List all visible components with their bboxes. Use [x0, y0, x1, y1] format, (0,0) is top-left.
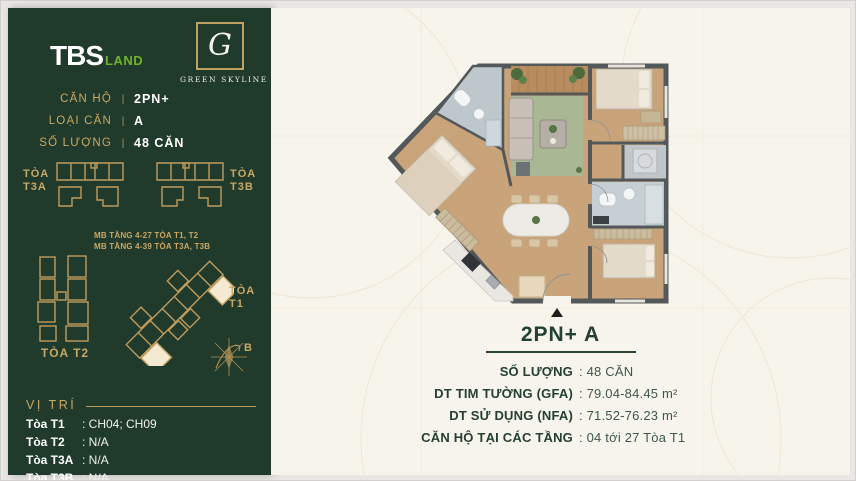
unit-specs: CĂN HỘ | 2PN+ LOẠI CĂN | A SỐ LƯỢNG | 48…	[8, 88, 271, 154]
location-row: Tòa T2 : N/A	[26, 433, 157, 451]
spec-divider: |	[112, 116, 134, 127]
compass-north-label: B	[244, 342, 252, 354]
project-name: GREEN SKYLINE	[180, 75, 260, 84]
floorplan-panel: 2PN+ A SỐ LƯỢNG : 48 CĂN DT TIM TƯỜNG (G…	[271, 8, 850, 475]
green-skyline-logo: G GREEN SKYLINE	[180, 22, 260, 84]
spec-value: 2PN+	[134, 92, 271, 106]
logo-row: TBSLAND G GREEN SKYLINE	[8, 22, 271, 92]
sidebar: TBSLAND G GREEN SKYLINE CĂN HỘ | 2PN+ LO…	[8, 8, 271, 475]
spec-value: 48 CĂN	[134, 136, 271, 150]
tower-t1-label: TÒA T1	[229, 285, 255, 311]
spec-value: A	[134, 114, 271, 128]
spec-label: LOẠI CĂN	[8, 115, 112, 127]
unit-title: 2PN+ A	[271, 323, 850, 347]
tbs-land-logo: TBSLAND	[50, 40, 143, 72]
floorplan-drawing	[383, 58, 685, 320]
tower-t3b-diagram-icon	[151, 159, 227, 213]
detail-row: CĂN HỘ TẠI CÁC TẦNG : 04 tới 27 Tòa T1	[271, 426, 850, 448]
detail-row: DT SỬ DỤNG (NFA) : 71.52-76.23 m²	[271, 404, 850, 426]
spec-divider: |	[112, 138, 134, 149]
spec-row-can-ho: CĂN HỘ | 2PN+	[8, 88, 271, 110]
compass-icon	[206, 334, 252, 380]
ottoman	[516, 162, 530, 176]
location-row: Tòa T3A : N/A	[26, 451, 157, 469]
location-heading: VỊ TRÍ	[26, 398, 76, 412]
monogram-g-icon: G	[208, 31, 232, 61]
tower-t2-diagram-icon	[22, 254, 108, 346]
plant-icon	[576, 167, 582, 173]
note-line: MB TẦNG 4-39 TÒA T3A, T3B	[94, 241, 210, 252]
detail-row: SỐ LƯỢNG : 48 CĂN	[271, 360, 850, 382]
balcony	[511, 66, 588, 94]
living-room	[509, 96, 583, 176]
tower-t3a-diagram-icon	[53, 159, 129, 213]
unit-details: SỐ LƯỢNG : 48 CĂN DT TIM TƯỜNG (GFA) : 7…	[271, 360, 850, 448]
bathroom-2	[590, 182, 666, 227]
brochure-page: TBSLAND G GREEN SKYLINE CĂN HỘ | 2PN+ LO…	[0, 0, 856, 481]
location-rows: Tòa T1 : CH04; CH09 Tòa T2 : N/A Tòa T3A…	[26, 415, 157, 481]
tower-t3b-label: TÒA T3B	[230, 168, 256, 194]
monogram-frame-icon: G	[196, 22, 244, 70]
note-line: MB TẦNG 4-27 TÒA T1, T2	[94, 230, 210, 241]
title-underline	[486, 351, 636, 353]
detail-row: DT TIM TƯỜNG (GFA) : 79.04-84.45 m²	[271, 382, 850, 404]
coffee-table	[540, 120, 566, 148]
spec-row-so-luong: SỐ LƯỢNG | 48 CĂN	[8, 132, 271, 154]
spec-divider: |	[112, 94, 134, 105]
location-heading-row: VỊ TRÍ	[26, 398, 256, 412]
tower-t2-label: TÒA T2	[22, 346, 108, 360]
spec-label: SỐ LƯỢNG	[8, 137, 112, 149]
location-row: Tòa T1 : CH04; CH09	[26, 415, 157, 433]
land-logo-text: LAND	[105, 53, 143, 68]
heading-rule	[86, 406, 256, 407]
entrance-arrow-icon	[551, 308, 563, 317]
spec-label: CĂN HỘ	[8, 93, 112, 105]
tower-t3a-label: TÒA T3A	[23, 168, 49, 194]
cabinet	[519, 276, 545, 297]
floorplate-notes: MB TẦNG 4-27 TÒA T1, T2 MB TẦNG 4-39 TÒA…	[94, 230, 210, 252]
tbs-logo-text: TBS	[50, 40, 103, 71]
spec-row-loai-can: LOẠI CĂN | A	[8, 110, 271, 132]
location-row: Tòa T3B : N/A	[26, 469, 157, 481]
